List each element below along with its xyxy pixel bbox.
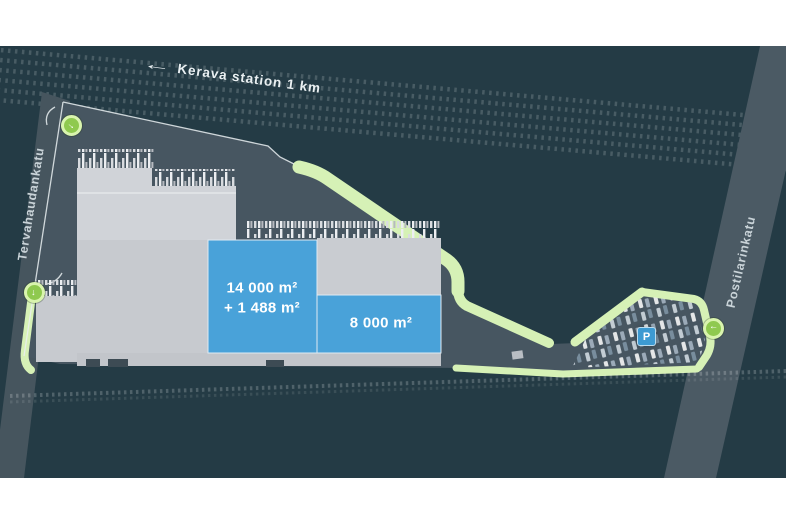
unit-1-size: 14 000 m² bbox=[224, 279, 300, 299]
unit-2-size: 8 000 m² bbox=[350, 313, 412, 333]
gate-hut bbox=[511, 350, 523, 359]
site-plan-canvas bbox=[0, 0, 786, 524]
unit-1-label: 14 000 m² + 1 488 m² bbox=[224, 279, 300, 318]
entrance-arrow-icon: → bbox=[709, 324, 719, 334]
site-plan: ← Kerava station 1 km Tervahaudankatu Po… bbox=[0, 0, 786, 524]
parking-sign: P bbox=[637, 327, 656, 346]
dock-doors bbox=[154, 169, 236, 186]
unit-1-size-extra: + 1 488 m² bbox=[224, 298, 300, 318]
unit-2-label: 8 000 m² bbox=[350, 313, 412, 333]
entrance-arrow-icon: → bbox=[65, 119, 78, 132]
dock-doors bbox=[78, 149, 154, 168]
entrance-marker-north[interactable]: → bbox=[61, 115, 82, 136]
entrance-arrow-icon: → bbox=[30, 288, 39, 297]
entrance-marker-east[interactable]: → bbox=[703, 318, 724, 339]
dock-doors bbox=[246, 221, 440, 238]
entrance-marker-west[interactable]: → bbox=[24, 282, 45, 303]
